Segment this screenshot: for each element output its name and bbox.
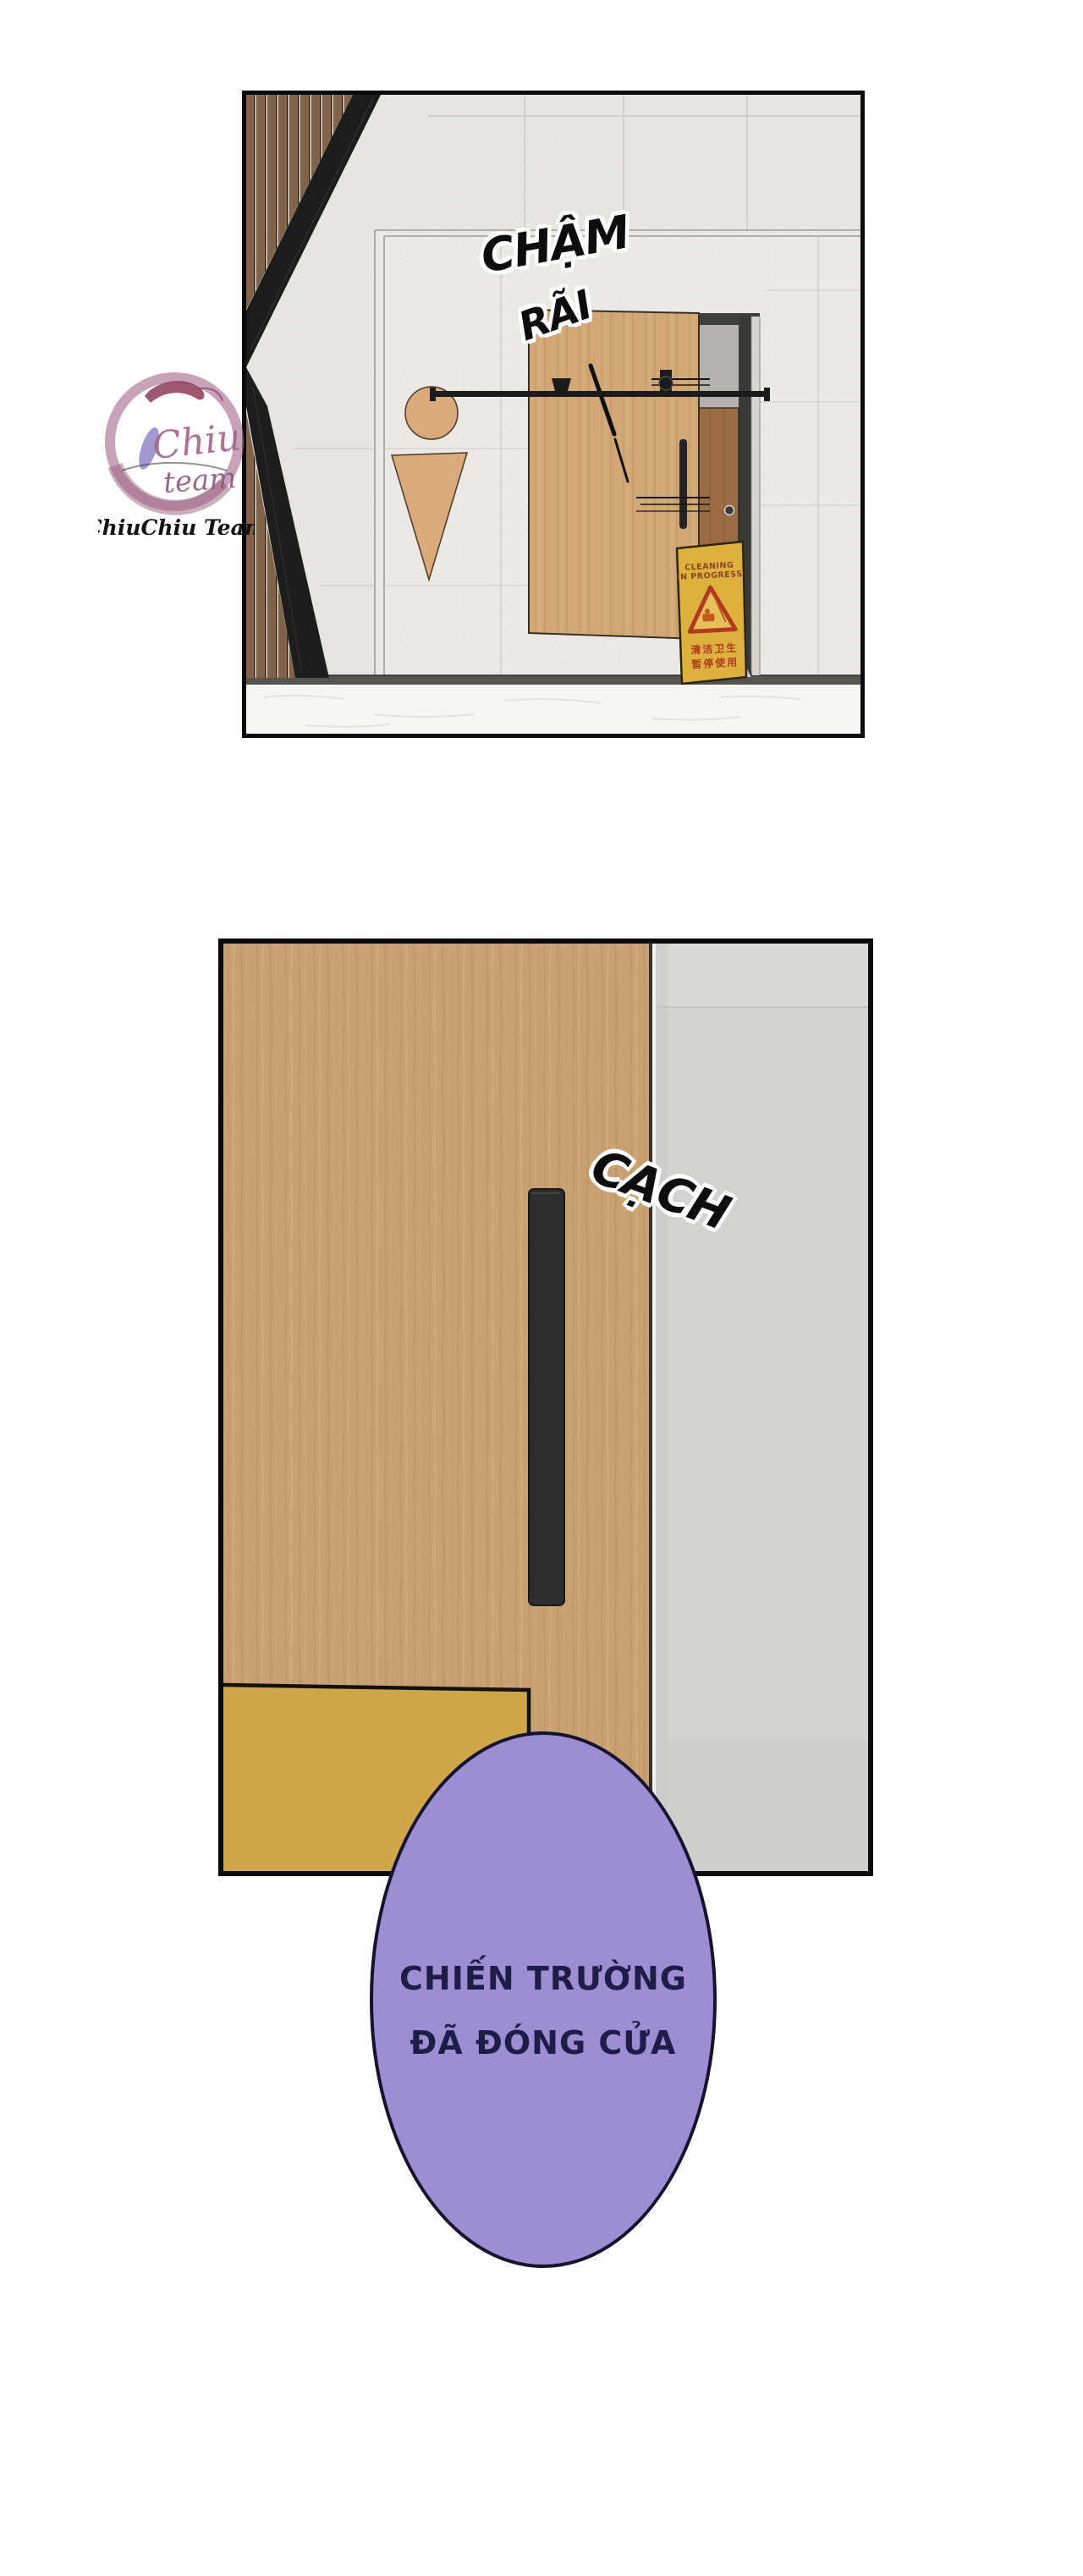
comic-page: CLEANING IN PROGRESS 清洁卫生 暂停使用: [0, 0, 1083, 2576]
speech-bubble-text: CHIẾN TRƯỜNG ĐÃ ĐÓNG CỬA: [373, 1946, 713, 2075]
cleaning-sign: CLEANING IN PROGRESS 清洁卫生 暂停使用: [676, 542, 751, 684]
watermark-logo: Chiu team ChiuChiu Team: [98, 364, 255, 546]
bubble-line-2: ĐÃ ĐÓNG CỬA: [373, 2011, 713, 2075]
watermark-caption: ChiuChiu Team: [98, 515, 255, 540]
logo-word-2: team: [162, 461, 238, 500]
sliding-door: [529, 310, 699, 639]
rail-bracket-icon: [552, 378, 571, 391]
cleaning-sign-cn2: 暂停使用: [691, 655, 739, 670]
bubble-line-1: CHIẾN TRƯỜNG: [373, 1946, 713, 2011]
door-knob-icon: [725, 506, 734, 515]
logo-word-1: Chiu: [151, 416, 243, 468]
sliding-door-handle: [679, 439, 687, 529]
speech-bubble: CHIẾN TRƯỜNG ĐÃ ĐÓNG CỬA: [370, 1731, 717, 2268]
cleaning-sign-cn1: 清洁卫生: [690, 641, 739, 656]
door-handle: [529, 1189, 564, 1605]
panel-top-art: CLEANING IN PROGRESS 清洁卫生 暂停使用: [246, 95, 860, 734]
floor: [246, 675, 860, 734]
wall-closeup: [656, 944, 868, 1871]
panel-top: CLEANING IN PROGRESS 清洁卫生 暂停使用: [242, 91, 865, 738]
inner-door: [699, 408, 739, 546]
